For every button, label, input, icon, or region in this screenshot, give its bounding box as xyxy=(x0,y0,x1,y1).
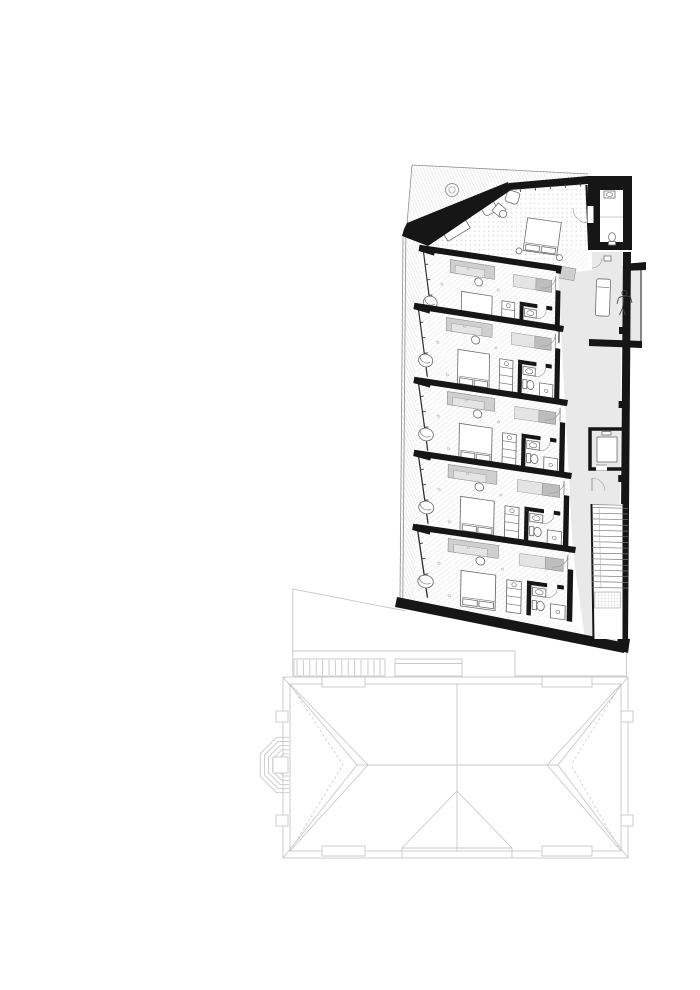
suite-bathroom xyxy=(588,176,633,250)
stair-landing-grate xyxy=(595,592,621,608)
turret-core xyxy=(273,757,288,773)
washbasin xyxy=(604,191,615,198)
floor-plan-drawing xyxy=(0,0,700,990)
existing-building-roof xyxy=(260,677,633,858)
roof-access-band xyxy=(294,659,462,676)
toilet xyxy=(609,233,616,242)
floor-plan-sheet xyxy=(0,0,700,990)
roof-dormer-notches xyxy=(276,677,633,856)
new-building-plan xyxy=(395,165,646,653)
sunbed xyxy=(595,279,610,316)
